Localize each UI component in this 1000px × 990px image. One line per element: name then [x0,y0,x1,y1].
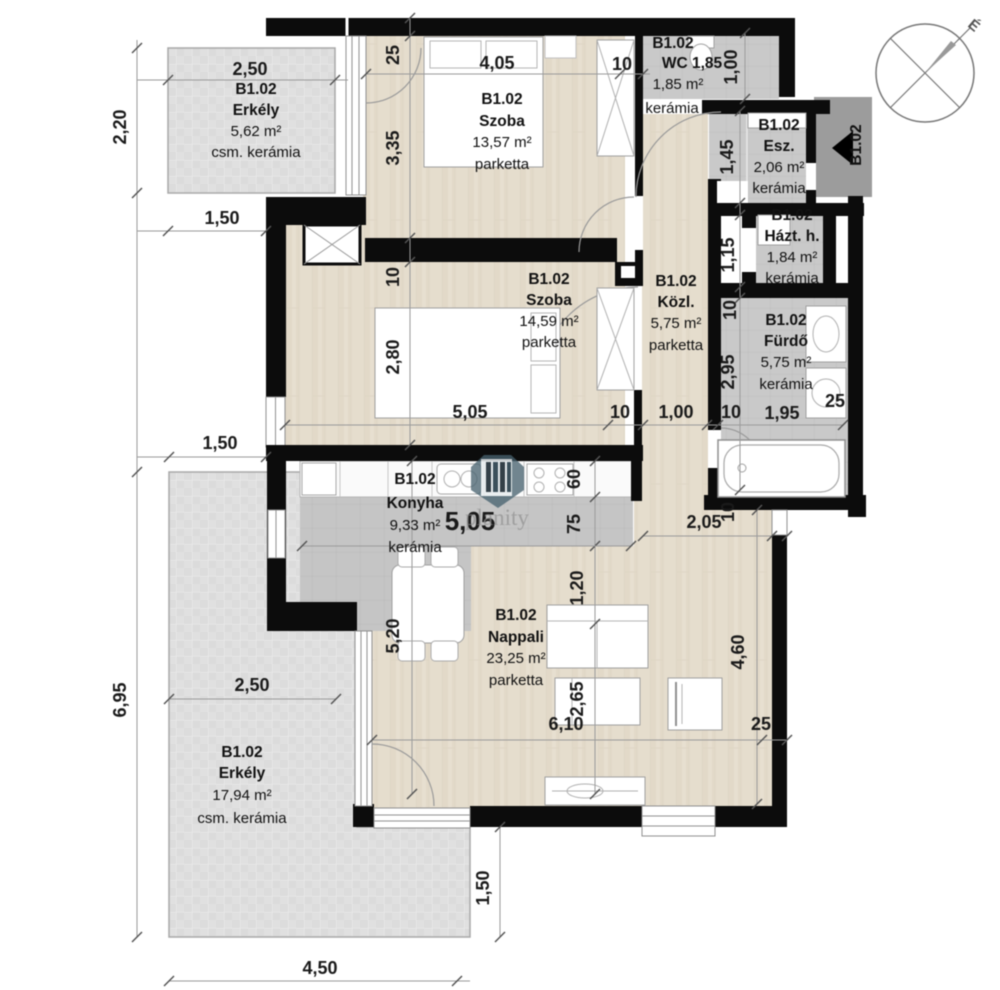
svg-text:4,60: 4,60 [728,634,748,669]
svg-text:2,20: 2,20 [110,109,130,144]
svg-text:25: 25 [383,45,403,65]
svg-text:1,95: 1,95 [764,403,799,423]
svg-text:5,05: 5,05 [452,402,487,422]
svg-text:Szoba: Szoba [479,113,525,130]
svg-text:B1.02: B1.02 [758,117,799,134]
svg-text:2,06 m²: 2,06 m² [754,159,805,176]
svg-text:B1.02: B1.02 [765,312,806,329]
svg-text:Közl.: Közl. [657,294,694,311]
svg-text:25: 25 [825,391,845,411]
svg-text:6,10: 6,10 [548,714,583,734]
svg-text:csm. kerámia: csm. kerámia [197,810,287,827]
svg-text:csm. kerámia: csm. kerámia [211,144,301,161]
svg-text:10: 10 [612,54,632,74]
svg-text:1,84 m²: 1,84 m² [767,249,818,266]
svg-text:2,65: 2,65 [567,681,587,716]
svg-text:1,15: 1,15 [718,237,738,272]
svg-text:5,62 m²: 5,62 m² [231,123,282,140]
svg-text:1,85 m²: 1,85 m² [653,76,704,93]
svg-text:1,00: 1,00 [721,49,741,84]
svg-text:5,20: 5,20 [383,618,403,653]
svg-text:Nappali: Nappali [488,629,544,646]
svg-text:14,59 m²: 14,59 m² [519,313,578,330]
svg-text:25: 25 [751,714,771,734]
svg-text:1,50: 1,50 [202,433,237,453]
svg-text:1,45: 1,45 [717,139,737,174]
svg-text:10: 10 [718,502,738,522]
svg-text:6,95: 6,95 [110,682,130,717]
svg-text:B1.02: B1.02 [394,471,435,488]
svg-text:2,80: 2,80 [383,339,403,374]
svg-text:2,50: 2,50 [232,59,267,79]
svg-text:2,50: 2,50 [234,675,269,695]
svg-text:B1.02: B1.02 [235,81,276,98]
svg-text:Szoba: Szoba [526,292,572,309]
svg-text:2,95: 2,95 [718,354,738,389]
svg-text:B1.02: B1.02 [495,607,536,624]
svg-text:10: 10 [720,300,740,320]
svg-text:9,33 m²: 9,33 m² [390,517,441,534]
svg-text:B1.02: B1.02 [652,35,693,52]
svg-text:75: 75 [564,514,584,534]
svg-text:parketta: parketta [475,156,530,173]
svg-text:13,57 m²: 13,57 m² [472,134,531,151]
svg-text:10: 10 [610,402,630,422]
svg-text:kerámia: kerámia [752,180,806,197]
svg-text:Esz.: Esz. [763,138,794,155]
svg-text:parketta: parketta [489,672,544,689]
svg-text:1,20: 1,20 [567,570,587,605]
svg-text:parketta: parketta [649,337,704,354]
svg-text:B1.02: B1.02 [221,744,262,761]
svg-text:1,00: 1,00 [658,402,693,422]
svg-text:B1.02: B1.02 [655,273,696,290]
svg-text:Erkély: Erkély [219,765,266,782]
svg-text:Házt. h.: Házt. h. [764,228,819,245]
svg-text:5,75 m²: 5,75 m² [651,315,702,332]
svg-text:10: 10 [383,267,403,287]
svg-text:Konyha: Konyha [387,495,444,512]
svg-text:WC 1,85: WC 1,85 [662,55,723,72]
svg-text:B1.02: B1.02 [848,124,865,165]
svg-text:B1.02: B1.02 [481,91,522,108]
svg-text:kerámia: kerámia [765,270,819,287]
svg-text:1,50: 1,50 [473,870,493,905]
svg-text:B1.02: B1.02 [528,271,569,288]
svg-text:B1.02: B1.02 [771,207,812,224]
svg-text:planity: planity [465,505,529,530]
svg-text:1,50: 1,50 [204,208,239,228]
svg-text:4,05: 4,05 [479,53,514,73]
svg-text:parketta: parketta [522,334,577,351]
svg-text:kerámia: kerámia [388,539,442,556]
svg-text:2,05: 2,05 [686,512,721,532]
svg-text:Erkély: Erkély [233,102,280,119]
svg-text:5,75 m²: 5,75 m² [761,354,812,371]
svg-text:10: 10 [721,402,741,422]
svg-text:23,25 m²: 23,25 m² [486,650,545,667]
svg-text:60: 60 [564,469,584,489]
svg-text:kerámia: kerámia [645,100,699,117]
svg-text:17,94 m²: 17,94 m² [212,787,271,804]
svg-text:4,50: 4,50 [302,958,337,978]
svg-text:Fürdő: Fürdő [764,333,808,350]
svg-text:3,35: 3,35 [383,130,403,165]
svg-text:kerámia: kerámia [759,376,813,393]
